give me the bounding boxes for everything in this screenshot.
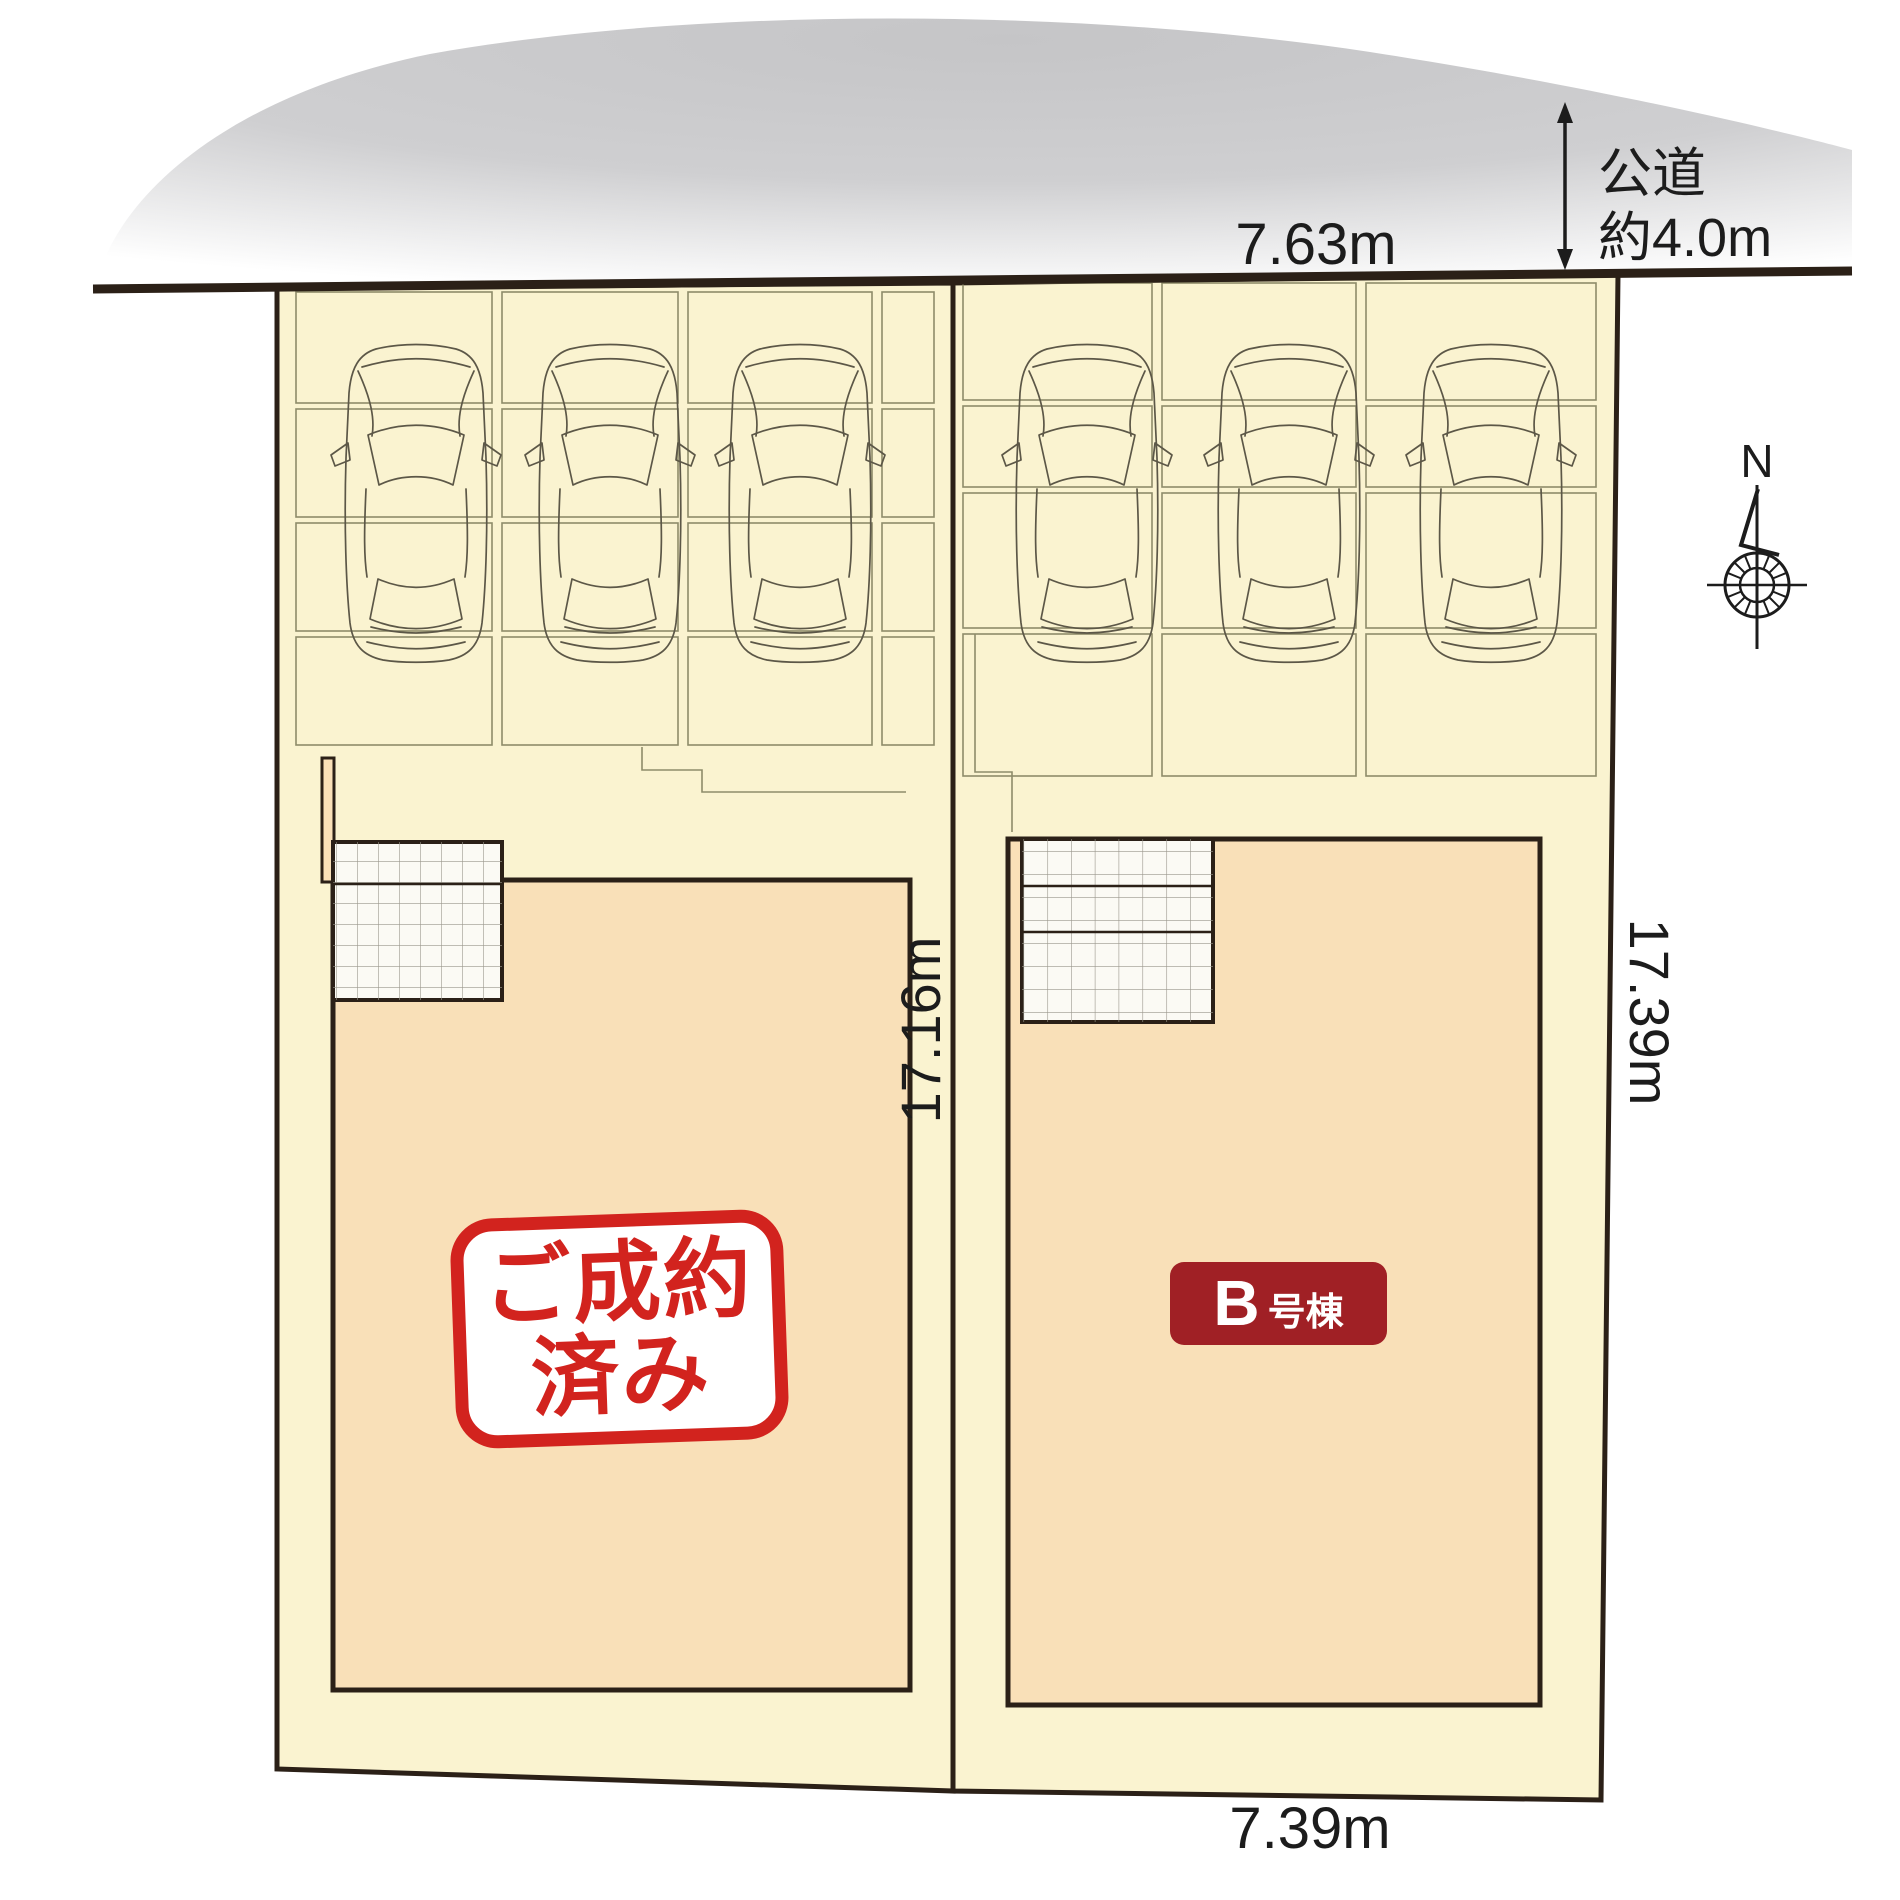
road-surface: [95, 19, 1852, 290]
road-label-line2: 約4.0m: [1598, 208, 1772, 268]
sold-stamp-line1: ご成約: [481, 1231, 754, 1334]
dim-top-width: 7.63m: [1235, 212, 1396, 277]
porch-tiles-right: [1022, 839, 1213, 1022]
compass-north-indicator: N: [1707, 435, 1807, 649]
sold-stamp-line2: 済み: [530, 1326, 713, 1425]
sold-status-stamp: ご成約 済み: [449, 1208, 790, 1449]
site-plan-page: 公道 約4.0m 7.63m 17.16m 17.39m 7.39m N: [0, 0, 1900, 1900]
unit-b-badge: B 号棟: [1170, 1262, 1387, 1345]
porch-tiles-left: [333, 842, 502, 1000]
unit-badge-letter: B: [1213, 1262, 1259, 1345]
site-plan-drawing: 公道 約4.0m 7.63m 17.16m 17.39m 7.39m N: [0, 0, 1900, 1900]
dim-bottom-width: 7.39m: [1229, 1796, 1390, 1861]
compass-n-label: N: [1740, 435, 1773, 487]
dim-right-depth: 17.39m: [1618, 919, 1681, 1106]
road-label-line1: 公道: [1598, 144, 1706, 204]
dim-left-depth: 17.16m: [889, 937, 952, 1124]
unit-badge-suffix: 号棟: [1268, 1272, 1344, 1355]
